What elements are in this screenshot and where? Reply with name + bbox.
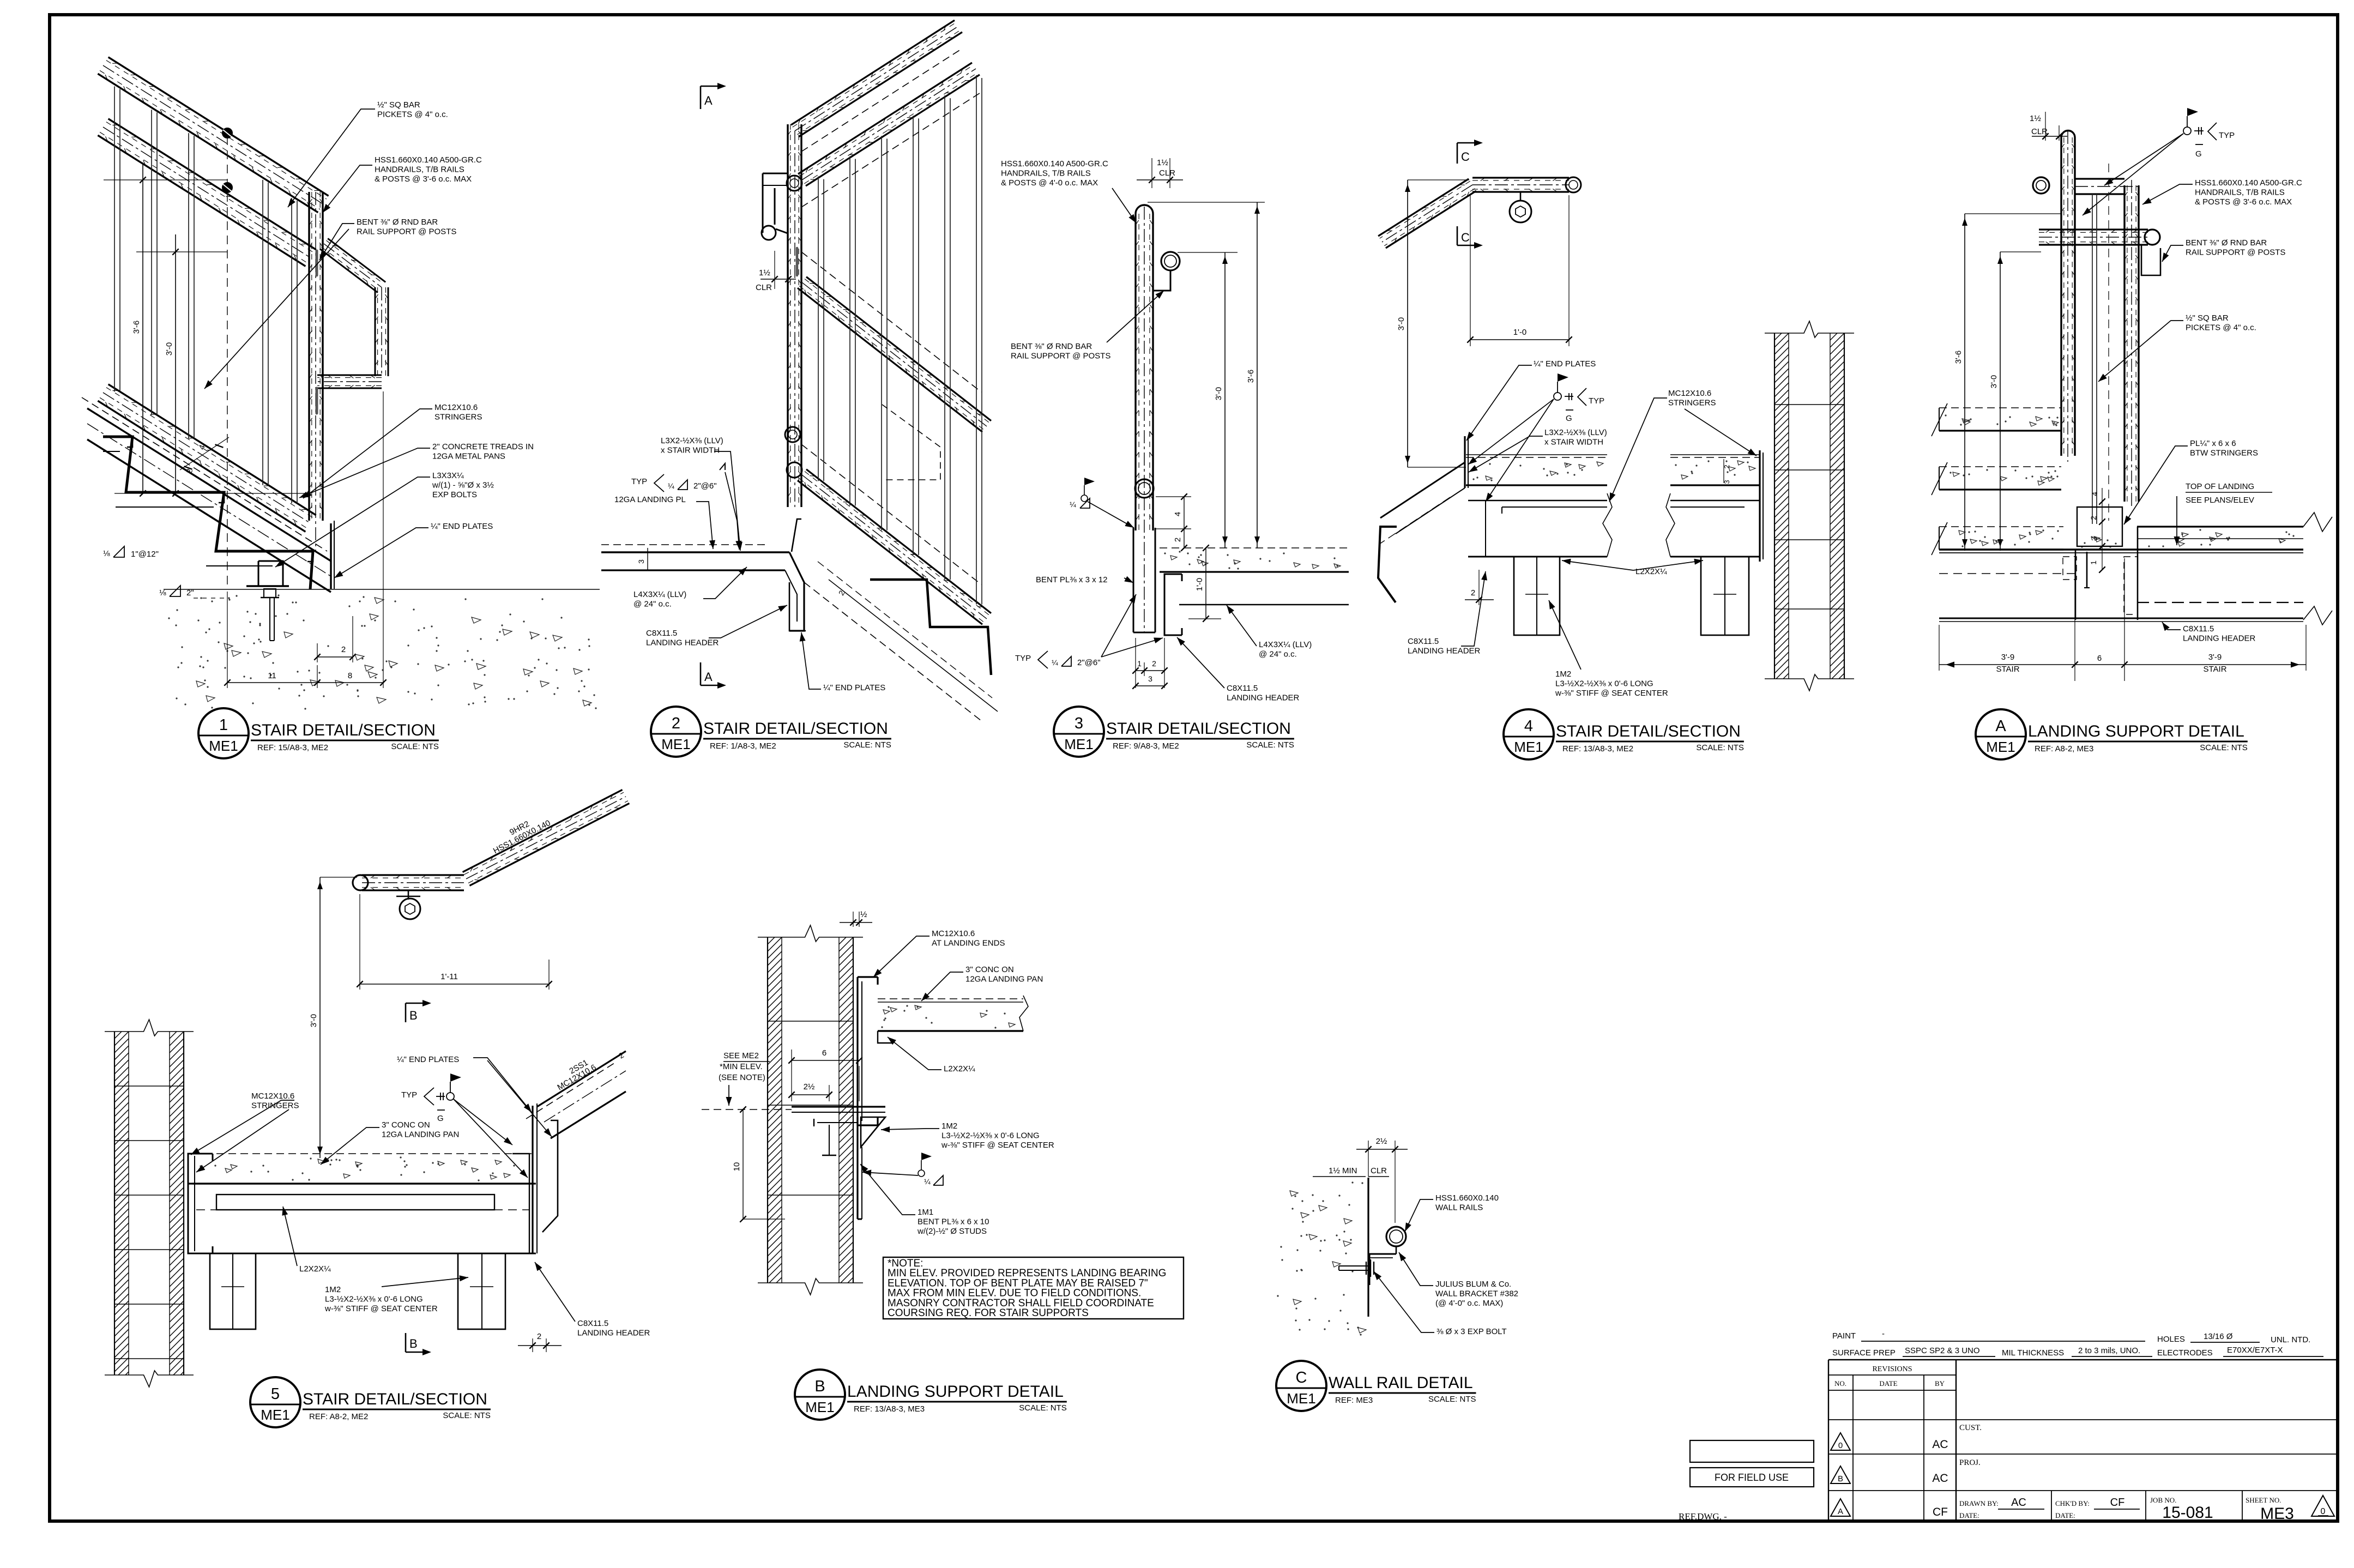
svg-text:½: ½ [860,910,867,919]
svg-text:1: 1 [2089,560,2098,565]
svg-text:SCALE: NTS: SCALE: NTS [1428,1395,1476,1404]
svg-text:UNL. NTD.: UNL. NTD. [2271,1335,2310,1344]
svg-text:10: 10 [732,1162,741,1172]
svg-text:6: 6 [822,1048,826,1058]
svg-text:1'-0: 1'-0 [1513,328,1527,337]
svg-text:3'-0: 3'-0 [1989,375,1999,389]
svg-text:SURFACE PREP: SURFACE PREP [1832,1348,1896,1358]
svg-text:REVISIONS: REVISIONS [1872,1365,1912,1373]
svg-text:B: B [1838,1474,1843,1483]
svg-text:*MIN ELEV.: *MIN ELEV. [720,1062,763,1071]
svg-text:ME1: ME1 [661,736,690,752]
svg-text:LANDING HEADER: LANDING HEADER [2183,634,2256,643]
svg-text:STAIR: STAIR [1996,665,2019,674]
svg-text:MIL THICKNESS: MIL THICKNESS [2002,1348,2064,1358]
svg-text:(SEE NOTE): (SEE NOTE) [719,1073,765,1082]
svg-text:WALL RAIL DETAIL: WALL RAIL DETAIL [1329,1374,1473,1392]
svg-text:DRAWN BY:: DRAWN BY: [1959,1499,1999,1507]
svg-text:DATE:: DATE: [2055,1511,2075,1519]
svg-text:L3-½X2-½X⅜ x 0'-6 LONG: L3-½X2-½X⅜ x 0'-6 LONG [325,1295,423,1304]
svg-text:(@ 4'-0" o.c. MAX): (@ 4'-0" o.c. MAX) [1435,1299,1503,1308]
svg-text:L3X2-½X⅜ (LLV): L3X2-½X⅜ (LLV) [661,436,723,445]
svg-text:CLR: CLR [756,283,772,292]
svg-text:C8X11.5: C8X11.5 [2183,624,2214,634]
svg-text:13/16 Ø: 13/16 Ø [2204,1332,2233,1341]
svg-text:SHEET NO.: SHEET NO. [2246,1496,2281,1504]
svg-text:1M2: 1M2 [941,1121,957,1131]
svg-text:COURSING REQ. FOR STAIR SUPPOR: COURSING REQ. FOR STAIR SUPPORTS [888,1307,1089,1319]
svg-text:CHK'D BY:: CHK'D BY: [2055,1499,2090,1507]
svg-text:ME3: ME3 [2260,1505,2294,1523]
svg-text:B: B [409,1009,418,1022]
svg-text:1M2: 1M2 [1555,670,1571,679]
svg-text:STRINGERS: STRINGERS [434,413,482,422]
svg-text:SCALE: NTS: SCALE: NTS [1019,1403,1067,1413]
svg-text:3'-6: 3'-6 [132,321,141,334]
svg-text:3: 3 [1723,480,1731,484]
svg-text:TYP: TYP [1589,396,1604,406]
svg-text:PROJ.: PROJ. [1959,1458,1981,1467]
svg-text:CF: CF [2110,1497,2125,1509]
svg-text:JULIUS BLUM & Co.: JULIUS BLUM & Co. [1435,1280,1511,1289]
svg-text:LANDING HEADER: LANDING HEADER [577,1329,650,1338]
svg-text:¼: ¼ [924,1177,931,1186]
svg-text:15-081: 15-081 [2162,1504,2213,1522]
svg-text:3'-9: 3'-9 [2208,653,2222,662]
svg-text:2: 2 [1723,465,1731,468]
svg-text:REF: 15/A8-3, ME2: REF: 15/A8-3, ME2 [257,743,328,752]
svg-text:MC12X10.6: MC12X10.6 [1668,389,1711,398]
svg-text:C8X11.5: C8X11.5 [1227,684,1258,693]
svg-text:SCALE: NTS: SCALE: NTS [1246,740,1294,750]
svg-text:RAIL SUPPORT @ POSTS: RAIL SUPPORT @ POSTS [357,227,456,237]
svg-text:ME1: ME1 [1514,739,1543,755]
svg-text:⅛: ⅛ [103,549,110,558]
svg-text:AC: AC [2011,1497,2026,1509]
svg-text:SCALE: NTS: SCALE: NTS [391,742,439,751]
svg-text:LANDING HEADER: LANDING HEADER [646,638,719,648]
svg-text:3: 3 [2090,536,2098,541]
svg-text:2: 2 [341,645,346,654]
svg-text:¼: ¼ [1052,658,1058,667]
svg-text:DATE:: DATE: [1959,1511,1979,1519]
svg-text:L4X3X¼ (LLV): L4X3X¼ (LLV) [1259,640,1312,649]
svg-text:1M1: 1M1 [918,1208,933,1217]
svg-text:BENT ⅜" Ø RND BAR: BENT ⅜" Ø RND BAR [357,218,438,227]
svg-text:AC: AC [1932,1438,1948,1451]
svg-text:¼" END PLATES: ¼" END PLATES [1534,359,1596,369]
svg-text:TYP: TYP [2219,131,2235,140]
svg-text:w/(1) - ⅝"Ø x 3½: w/(1) - ⅝"Ø x 3½ [432,481,494,490]
svg-text:REF: A8-2, ME3: REF: A8-2, ME3 [2035,744,2093,753]
svg-text:3'-0: 3'-0 [165,342,174,356]
svg-text:-: - [1882,1329,1885,1338]
svg-text:w-⅜" STIFF @ SEAT CENTER: w-⅜" STIFF @ SEAT CENTER [324,1304,438,1313]
svg-text:1'-0: 1'-0 [1195,578,1204,592]
svg-text:HSS1.660X0.140: HSS1.660X0.140 [1435,1193,1499,1203]
svg-text:2½: 2½ [1376,1137,1387,1146]
svg-text:WALL BRACKET #382: WALL BRACKET #382 [1435,1289,1518,1299]
svg-text:@ 24" o.c.: @ 24" o.c. [633,600,672,609]
svg-text:2½: 2½ [804,1082,815,1091]
svg-text:SCALE: NTS: SCALE: NTS [1696,743,1744,752]
svg-text:12GA LANDING PAN: 12GA LANDING PAN [965,975,1043,984]
svg-text:HSS1.660X0.140 A500-GR.C: HSS1.660X0.140 A500-GR.C [1001,159,1108,168]
svg-text:B: B [814,1378,825,1395]
svg-text:PAINT: PAINT [1832,1331,1856,1341]
svg-text:¼" END PLATES: ¼" END PLATES [823,683,885,692]
svg-text:w/(2)-½" Ø STUDS: w/(2)-½" Ø STUDS [917,1227,987,1236]
svg-text:2": 2" [186,588,194,598]
svg-text:¼" END PLATES: ¼" END PLATES [397,1055,459,1064]
svg-text:6: 6 [2097,654,2102,663]
svg-text:PICKETS @ 4" o.c.: PICKETS @ 4" o.c. [377,110,448,119]
svg-text:HANDRAILS, T/B RAILS: HANDRAILS, T/B RAILS [375,165,464,174]
svg-text:CUST.: CUST. [1959,1424,1982,1432]
svg-text:REF: 1/A8-3, ME2: REF: 1/A8-3, ME2 [710,741,776,751]
svg-text:STAIR DETAIL/SECTION: STAIR DETAIL/SECTION [1556,722,1741,740]
svg-text:REF: 9/A8-3, ME2: REF: 9/A8-3, ME2 [1113,741,1179,751]
svg-text:x STAIR WIDTH: x STAIR WIDTH [661,446,720,455]
svg-text:11: 11 [268,671,276,680]
svg-text:2: 2 [1471,588,1475,598]
svg-text:ELECTRODES: ELECTRODES [2157,1348,2213,1358]
svg-text:3" CONC ON: 3" CONC ON [965,965,1014,974]
svg-text:1½: 1½ [759,268,770,278]
svg-text:STRINGERS: STRINGERS [251,1101,299,1111]
svg-text:3'-0: 3'-0 [1397,317,1406,331]
svg-text:L3X2-½X⅜ (LLV): L3X2-½X⅜ (LLV) [1544,428,1607,437]
svg-text:0: 0 [1838,1441,1843,1450]
svg-text:12GA METAL PANS: 12GA METAL PANS [432,452,505,461]
svg-text:ME1: ME1 [805,1399,834,1415]
svg-text:SCALE: NTS: SCALE: NTS [443,1411,491,1420]
svg-text:WALL RAILS: WALL RAILS [1435,1203,1483,1213]
svg-text:SCALE: NTS: SCALE: NTS [843,740,891,750]
svg-text:AC: AC [1932,1472,1948,1485]
svg-text:PICKETS @ 4" o.c.: PICKETS @ 4" o.c. [2186,323,2256,333]
svg-text:HSS1.660X0.140 A500-GR.C: HSS1.660X0.140 A500-GR.C [375,155,482,165]
svg-text:8: 8 [348,671,352,680]
svg-text:HOLES: HOLES [2157,1335,2185,1344]
svg-text:C8X11.5: C8X11.5 [1408,637,1439,646]
svg-text:LANDING SUPPORT DETAIL: LANDING SUPPORT DETAIL [847,1383,1064,1401]
svg-text:2: 2 [672,715,680,732]
svg-text:MC12X10.6: MC12X10.6 [932,929,975,938]
svg-text:x STAIR WIDTH: x STAIR WIDTH [1544,438,1603,447]
svg-text:ME1: ME1 [1287,1390,1315,1407]
svg-text:REF: ME3: REF: ME3 [1335,1396,1373,1405]
svg-text:1M2: 1M2 [325,1285,341,1294]
svg-text:1½: 1½ [2030,114,2041,123]
svg-text:3'-9: 3'-9 [2001,653,2015,662]
svg-text:C: C [1461,231,1470,244]
svg-text:REF: 13/A8-3, ME2: REF: 13/A8-3, ME2 [1562,744,1633,753]
svg-text:C8X11.5: C8X11.5 [577,1319,608,1328]
svg-text:4: 4 [1524,717,1533,735]
svg-text:ME1: ME1 [1986,739,2015,755]
svg-text:1"@12": 1"@12" [131,550,159,559]
svg-text:STRINGERS: STRINGERS [1668,399,1716,408]
svg-text:E70XX/E7XT-X: E70XX/E7XT-X [2227,1346,2283,1355]
svg-text:RAIL SUPPORT @ POSTS: RAIL SUPPORT @ POSTS [1011,352,1110,361]
svg-text:STAIR DETAIL/SECTION: STAIR DETAIL/SECTION [303,1390,487,1408]
svg-text:REF.DWG. -: REF.DWG. - [1679,1511,1727,1522]
svg-text:¼: ¼ [1070,500,1076,509]
svg-text:2: 2 [1173,538,1182,542]
svg-text:SEE PLANS/ELEV: SEE PLANS/ELEV [2186,496,2254,505]
svg-text:A: A [1838,1507,1843,1516]
svg-text:4: 4 [2090,492,2099,496]
svg-text:1: 1 [1137,659,1142,668]
svg-text:@ 24" o.c.: @ 24" o.c. [1259,650,1297,659]
svg-text:L2X2X¼: L2X2X¼ [944,1064,975,1074]
svg-text:TYP: TYP [631,477,647,486]
svg-text:EXP BOLTS: EXP BOLTS [432,490,477,499]
svg-text:SSPC SP2 & 3 UNO: SSPC SP2 & 3 UNO [1905,1346,1980,1355]
svg-text:4: 4 [1173,512,1182,516]
svg-text:2"@6": 2"@6" [693,481,717,491]
svg-text:CLR: CLR [1159,168,1175,178]
svg-text:LANDING SUPPORT DETAIL: LANDING SUPPORT DETAIL [2028,722,2244,740]
svg-text:PL¼" x 6 x 6: PL¼" x 6 x 6 [2190,439,2236,448]
svg-text:L3-½X2-½X⅜ x 0'-6 LONG: L3-½X2-½X⅜ x 0'-6 LONG [1555,679,1653,689]
svg-text:L2X2X¼: L2X2X¼ [1635,567,1667,576]
svg-text:3'-0: 3'-0 [1214,387,1223,401]
svg-text:STAIR: STAIR [2203,665,2226,674]
svg-text:A: A [1995,717,2006,735]
svg-text:HSS1.660X0.140 A500-GR.C: HSS1.660X0.140 A500-GR.C [2195,178,2302,188]
svg-text:LANDING HEADER: LANDING HEADER [1227,693,1300,703]
svg-text:SCALE: NTS: SCALE: NTS [2200,743,2248,752]
svg-text:G: G [1566,414,1572,423]
svg-text:BENT PL⅜ x 6 x 10: BENT PL⅜ x 6 x 10 [918,1217,989,1227]
svg-text:3: 3 [1148,674,1152,683]
svg-text:G: G [437,1114,444,1123]
svg-text:BENT PL⅜ x 3 x 12: BENT PL⅜ x 3 x 12 [1036,575,1107,584]
svg-text:½" SQ BAR: ½" SQ BAR [2186,313,2229,323]
svg-text:FOR FIELD USE: FOR FIELD USE [1715,1472,1789,1483]
svg-text:C: C [1461,150,1470,164]
svg-text:& POSTS @ 3'-6 o.c. MAX: & POSTS @ 3'-6 o.c. MAX [375,174,472,184]
svg-text:ME1: ME1 [209,738,238,754]
svg-text:¼" END PLATES: ¼" END PLATES [431,522,493,531]
svg-text:STAIR DETAIL/SECTION: STAIR DETAIL/SECTION [251,721,436,739]
svg-text:DATE: DATE [1879,1379,1897,1388]
svg-text:& POSTS @ 3'-6 o.c. MAX: & POSTS @ 3'-6 o.c. MAX [2195,197,2292,207]
svg-text:CLR: CLR [1371,1166,1387,1175]
svg-text:w-⅜" STIFF @ SEAT CENTER: w-⅜" STIFF @ SEAT CENTER [1555,689,1668,698]
svg-text:HANDRAILS, T/B RAILS: HANDRAILS, T/B RAILS [2195,188,2285,197]
svg-text:L2X2X¼: L2X2X¼ [299,1264,331,1274]
svg-text:3'-6: 3'-6 [1246,370,1256,383]
svg-text:MC12X10.6: MC12X10.6 [434,403,478,412]
svg-text:2" CONCRETE TREADS IN: 2" CONCRETE TREADS IN [432,442,534,451]
svg-text:B: B [409,1337,418,1350]
svg-text:C8X11.5: C8X11.5 [646,629,677,638]
svg-text:& POSTS @ 4'-0 o.c. MAX: & POSTS @ 4'-0 o.c. MAX [1001,178,1098,188]
svg-text:BY: BY [1935,1379,1945,1388]
svg-text:G: G [2195,149,2202,159]
svg-text:L3-½X2-½X⅜ x 0'-6 LONG: L3-½X2-½X⅜ x 0'-6 LONG [941,1131,1040,1141]
svg-text:2: 2 [537,1332,541,1341]
svg-text:REF: A8-2, ME2: REF: A8-2, ME2 [309,1412,368,1421]
svg-text:A: A [704,94,713,107]
svg-text:TOP OF LANDING: TOP OF LANDING [2186,482,2254,491]
svg-text:CF: CF [1933,1506,1948,1518]
svg-text:TYP: TYP [1015,654,1031,663]
svg-text:BENT ⅜" Ø RND BAR: BENT ⅜" Ø RND BAR [1011,342,1092,351]
svg-text:3: 3 [1075,715,1083,732]
svg-text:REF: 13/A8-3, ME3: REF: 13/A8-3, ME3 [854,1404,925,1414]
svg-text:2 to 3 mils, UNO.: 2 to 3 mils, UNO. [2078,1346,2140,1355]
svg-text:5: 5 [271,1385,280,1403]
svg-text:NO.: NO. [1834,1379,1846,1388]
svg-text:3'-6: 3'-6 [1954,351,1963,364]
svg-text:12GA LANDING PAN: 12GA LANDING PAN [382,1130,459,1139]
svg-text:MC12X10.6: MC12X10.6 [251,1091,294,1101]
svg-text:L3X3X¼: L3X3X¼ [432,471,464,480]
svg-text:1½: 1½ [1157,158,1168,167]
svg-text:ME1: ME1 [261,1407,289,1423]
svg-text:A: A [704,670,713,684]
svg-text:3: 3 [637,559,645,564]
svg-text:1: 1 [219,716,228,734]
svg-text:⅜ Ø x 3 EXP BOLT: ⅜ Ø x 3 EXP BOLT [1436,1327,1507,1336]
svg-text:SEE ME2: SEE ME2 [723,1051,759,1060]
svg-text:2: 2 [1152,659,1156,668]
svg-text:LANDING HEADER: LANDING HEADER [1408,647,1481,656]
svg-text:BTW STRINGERS: BTW STRINGERS [2190,449,2258,458]
svg-text:RAIL SUPPORT @ POSTS: RAIL SUPPORT @ POSTS [2186,248,2285,257]
svg-text:2: 2 [2089,516,2098,520]
svg-text:3" CONC ON: 3" CONC ON [382,1120,430,1130]
svg-text:0: 0 [2321,1507,2326,1516]
svg-text:STAIR DETAIL/SECTION: STAIR DETAIL/SECTION [703,720,888,738]
svg-text:HANDRAILS, T/B RAILS: HANDRAILS, T/B RAILS [1001,169,1091,178]
svg-text:¼: ¼ [668,481,674,490]
svg-text:JOB NO.: JOB NO. [2150,1496,2176,1504]
svg-text:3'-0: 3'-0 [309,1014,318,1028]
svg-text:ME1: ME1 [1064,736,1093,752]
svg-text:C: C [1296,1369,1307,1386]
svg-text:BENT ⅜" Ø RND BAR: BENT ⅜" Ø RND BAR [2186,238,2267,248]
svg-text:12GA LANDING PL: 12GA LANDING PL [614,495,686,504]
svg-text:L4X3X¼ (LLV): L4X3X¼ (LLV) [633,590,686,599]
svg-text:1½ MIN: 1½ MIN [1329,1166,1357,1175]
svg-text:½" SQ BAR: ½" SQ BAR [377,100,420,110]
svg-text:2"@6": 2"@6" [1077,658,1101,667]
svg-text:⅛: ⅛ [159,588,166,598]
svg-text:CLR: CLR [2031,127,2048,136]
svg-text:STAIR DETAIL/SECTION: STAIR DETAIL/SECTION [1106,720,1291,738]
svg-text:AT LANDING ENDS: AT LANDING ENDS [932,939,1005,948]
svg-text:w-⅜" STIFF @ SEAT CENTER: w-⅜" STIFF @ SEAT CENTER [941,1141,1054,1150]
svg-text:TYP: TYP [401,1090,417,1100]
svg-text:1'-11: 1'-11 [440,972,458,981]
